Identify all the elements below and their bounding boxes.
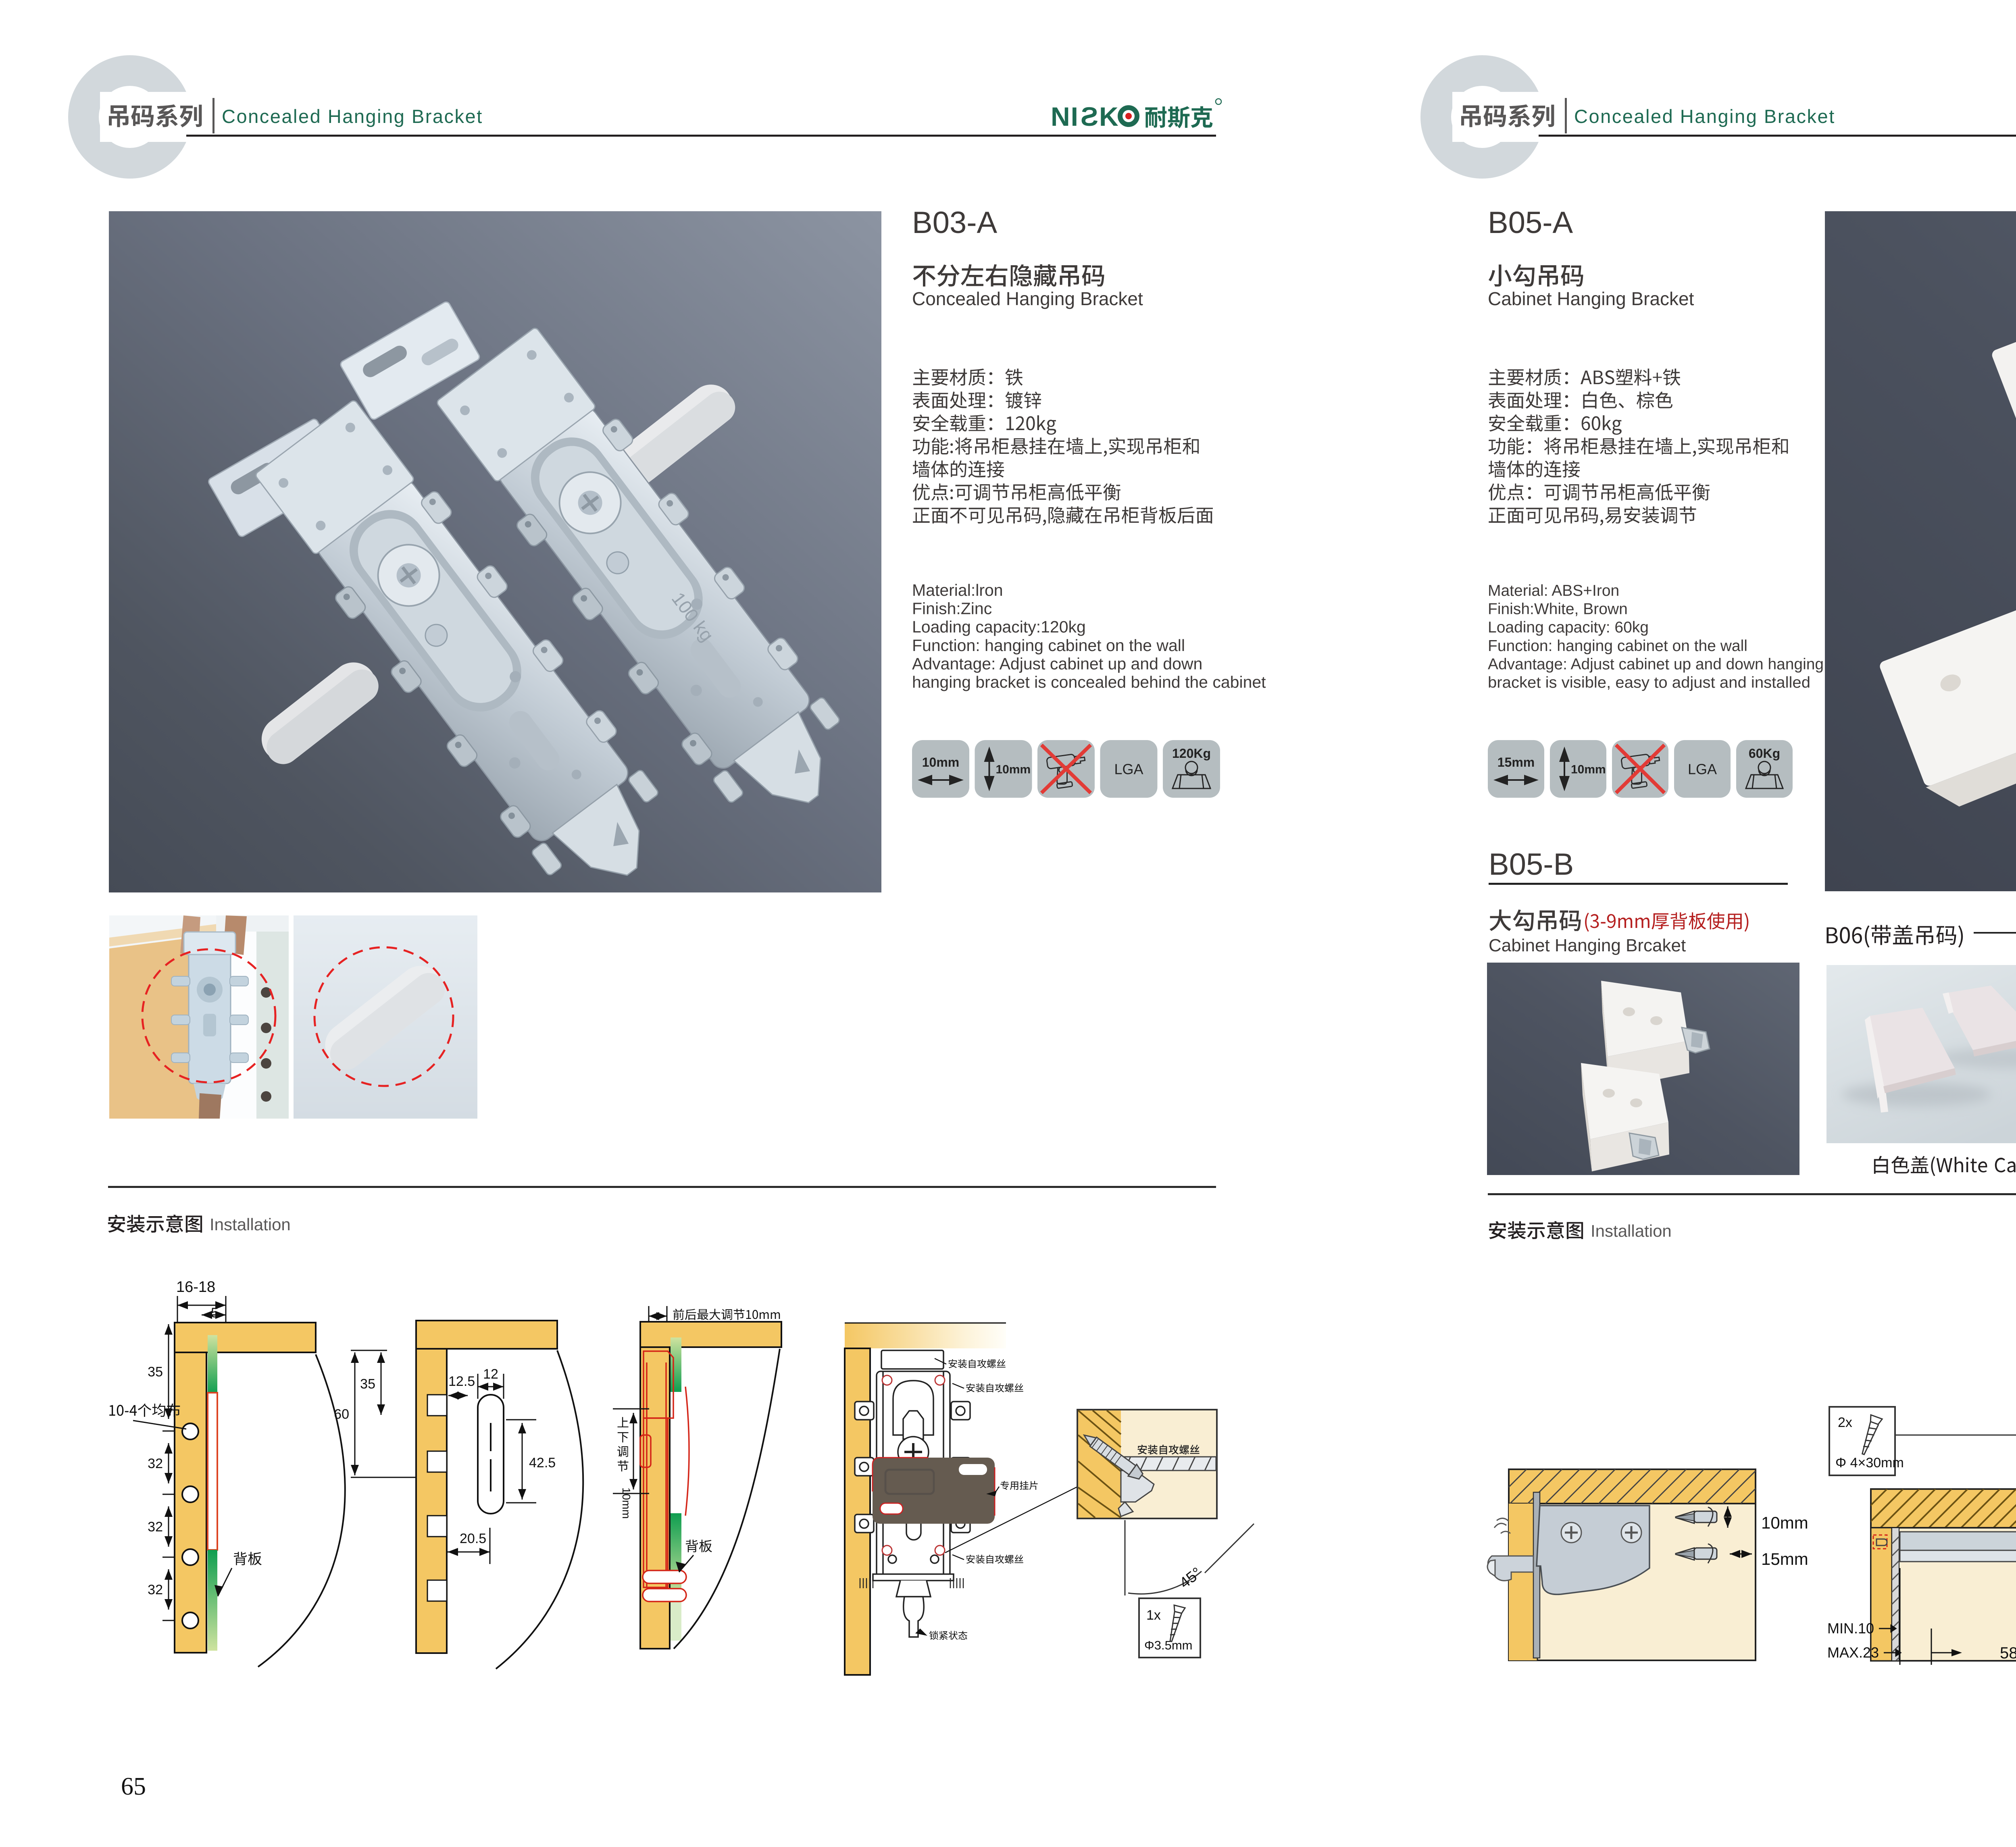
svg-text:42.5: 42.5	[529, 1455, 556, 1471]
svg-text:Advantage: Adjust cabinet up a: Advantage: Adjust cabinet up and down	[912, 654, 1202, 673]
svg-text:15mm: 15mm	[1497, 755, 1535, 770]
svg-text:12.5: 12.5	[448, 1374, 475, 1389]
svg-text:Installation: Installation	[1591, 1221, 1672, 1240]
svg-text:15mm: 15mm	[1761, 1550, 1808, 1568]
svg-text:Cabinet Hanging Brcaket: Cabinet Hanging Brcaket	[1489, 936, 1686, 955]
svg-text:32: 32	[148, 1456, 163, 1471]
svg-text:Concealed Hanging Bracket: Concealed Hanging Bracket	[1574, 106, 1835, 127]
svg-text:Advantage: Adjust cabinet up a: Advantage: Adjust cabinet up and down ha…	[1488, 655, 1824, 673]
svg-text:58: 58	[2000, 1644, 2016, 1662]
svg-text:20.5: 20.5	[460, 1531, 486, 1546]
svg-text:LGA: LGA	[1114, 761, 1143, 778]
svg-text:B05-B: B05-B	[1489, 847, 1574, 882]
svg-text:MAX.23: MAX.23	[1827, 1644, 1879, 1661]
svg-text:Function: hanging cabinet on t: Function: hanging cabinet on the wall	[1488, 637, 1747, 655]
svg-text:Finish:White, Brown: Finish:White, Brown	[1488, 601, 1628, 618]
svg-text:Loading capacity: 60kg: Loading capacity: 60kg	[1488, 619, 1649, 636]
svg-text:1x: 1x	[1146, 1608, 1161, 1623]
svg-text:Φ3.5mm: Φ3.5mm	[1144, 1638, 1192, 1652]
svg-text:2x: 2x	[1838, 1415, 1852, 1430]
svg-text:Installation: Installation	[210, 1215, 291, 1234]
svg-text:120Kg: 120Kg	[1172, 746, 1211, 761]
svg-text:35: 35	[360, 1377, 375, 1392]
svg-text:32: 32	[148, 1582, 163, 1597]
svg-text:Cabinet Hanging Bracket: Cabinet Hanging Bracket	[1488, 288, 1694, 309]
svg-text:32: 32	[148, 1519, 163, 1535]
svg-text:NI: NI	[1051, 102, 1079, 131]
svg-text:Material: ABS+Iron: Material: ABS+Iron	[1488, 582, 1619, 599]
svg-text:60Kg: 60Kg	[1749, 746, 1780, 761]
svg-text:35: 35	[148, 1364, 163, 1380]
svg-text:60: 60	[334, 1407, 349, 1422]
svg-text:Φ 4×30mm: Φ 4×30mm	[1835, 1455, 1904, 1471]
svg-text:10mm: 10mm	[922, 755, 960, 770]
svg-text:hanging bracket is concealed b: hanging bracket is concealed behind the …	[912, 673, 1266, 691]
svg-text:Function: hanging cabinet on t: Function: hanging cabinet on the wall	[912, 636, 1185, 655]
svg-text:B03-A: B03-A	[912, 206, 998, 240]
svg-text:10mm: 10mm	[1761, 1513, 1808, 1532]
svg-text:Material:lron: Material:lron	[912, 581, 1003, 599]
svg-text:Concealed Hanging Bracket: Concealed Hanging Bracket	[912, 288, 1143, 309]
svg-text:12: 12	[483, 1367, 498, 1382]
svg-text:Loading capacity:120kg: Loading capacity:120kg	[912, 618, 1086, 636]
svg-text:B05-A: B05-A	[1488, 206, 1573, 240]
svg-text:Finish:Zinc: Finish:Zinc	[912, 599, 992, 618]
svg-text:10mm: 10mm	[620, 1487, 633, 1519]
svg-text:10mm: 10mm	[996, 763, 1031, 776]
svg-text:65: 65	[121, 1773, 146, 1800]
svg-text:S: S	[1081, 102, 1098, 131]
svg-text:K: K	[1099, 102, 1118, 131]
svg-text:LGA: LGA	[1688, 761, 1717, 778]
svg-text:16-18: 16-18	[176, 1279, 215, 1296]
svg-text:MIN.10: MIN.10	[1827, 1620, 1874, 1637]
svg-text:bracket is visible, easy to ad: bracket is visible, easy to adjust and i…	[1488, 674, 1810, 691]
svg-text:Concealed Hanging Bracket: Concealed Hanging Bracket	[222, 106, 483, 127]
svg-text:10mm: 10mm	[1571, 763, 1606, 776]
